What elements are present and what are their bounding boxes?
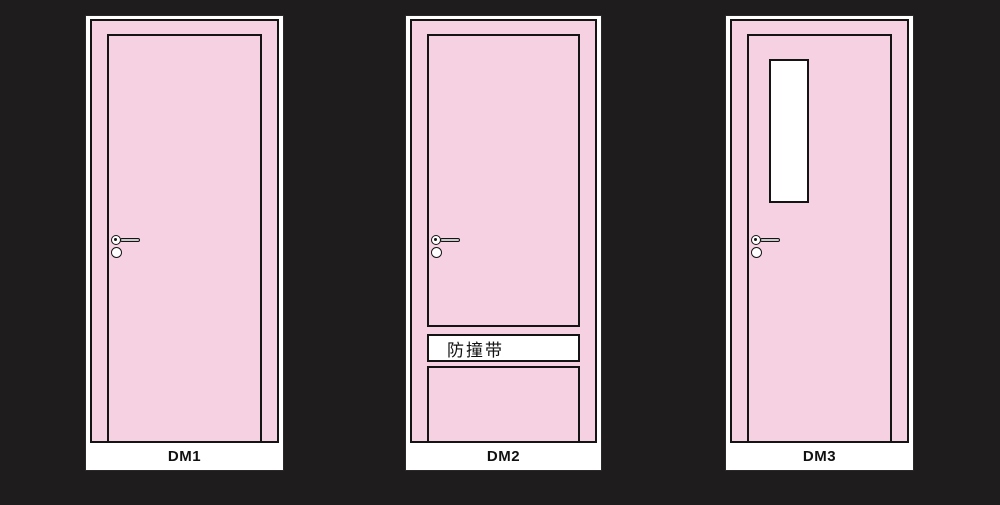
door-unit-dm2: 防撞带 DM2 — [406, 16, 601, 470]
door-frame: 防撞带 — [410, 19, 597, 443]
door-label-dm2: DM2 — [406, 443, 601, 470]
handle-lever-icon — [760, 238, 780, 243]
handle-lever-icon — [440, 238, 460, 243]
door-frame — [90, 19, 279, 443]
lever-handle-icon — [751, 235, 783, 261]
door-lower-panel — [427, 366, 580, 441]
door-leaf — [107, 34, 262, 441]
handle-knob-icon — [751, 247, 762, 258]
door-upper-panel — [427, 34, 580, 327]
door-unit-dm3: DM3 — [726, 16, 913, 470]
anti-collision-strip-label: 防撞带 — [429, 336, 504, 361]
lever-handle-icon — [111, 235, 143, 261]
door-leaf — [747, 34, 892, 441]
handle-lever-icon — [120, 238, 140, 243]
door-elevation-diagram: { "diagram_title": "door-type-elevations… — [0, 0, 1000, 505]
handle-knob-icon — [431, 247, 442, 258]
door-label-dm3: DM3 — [726, 443, 913, 470]
door-label-dm1: DM1 — [86, 443, 283, 470]
vision-panel-window — [769, 59, 809, 203]
door-unit-dm1: DM1 — [86, 16, 283, 470]
anti-collision-strip: 防撞带 — [427, 334, 580, 362]
door-frame — [730, 19, 909, 443]
handle-knob-icon — [111, 247, 122, 258]
lever-handle-icon — [431, 235, 463, 261]
